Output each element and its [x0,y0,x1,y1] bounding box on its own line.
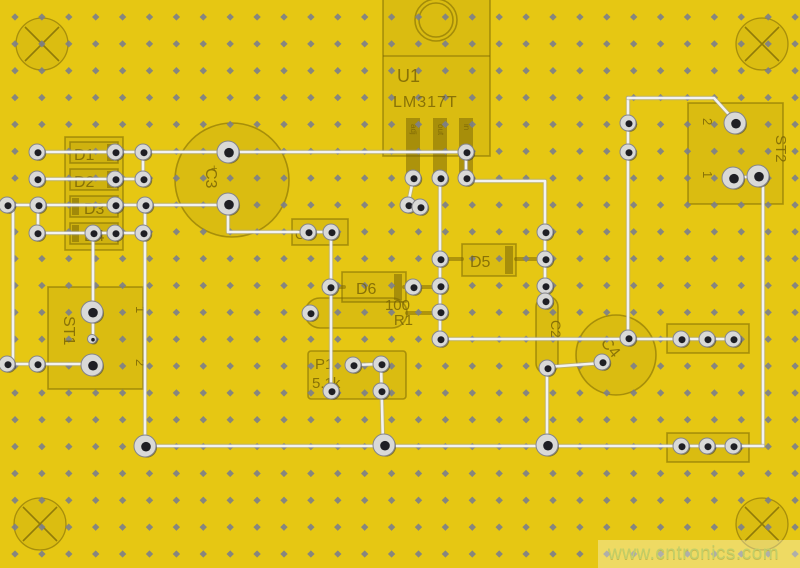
perfboard-hole [119,255,126,262]
perfboard-hole [549,201,556,208]
perfboard-hole [146,497,153,504]
label-st2: ST2 [772,135,789,163]
perfboard-hole [576,67,583,74]
perfboard-hole [522,13,529,20]
perfboard-hole [495,40,502,47]
perfboard-hole [657,524,664,531]
perfboard-hole [173,470,180,477]
perfboard-hole [173,121,180,128]
perfboard-hole [684,362,691,369]
perfboard-hole [469,470,476,477]
perfboard-hole [630,174,637,181]
perfboard-hole [361,524,368,531]
copper-trace [733,176,763,446]
perfboard-hole [415,550,422,557]
perfboard-hole [361,497,368,504]
perfboard-hole [791,174,798,181]
perfboard-hole [361,67,368,74]
perfboard-hole [280,389,287,396]
perfboard-hole [388,550,395,557]
label-d6: D6 [356,281,377,298]
perfboard-hole [549,524,556,531]
perfboard-hole [684,228,691,235]
solder-pad [29,171,46,188]
perfboard-hole [603,121,610,128]
component-c3-outline [175,123,289,237]
perfboard-hole [200,94,207,101]
perfboard-hole [765,362,772,369]
perfboard-hole [711,470,718,477]
perfboard-hole [603,67,610,74]
perfboard-hole [119,470,126,477]
perfboard-hole [549,389,556,396]
perfboard-hole [307,67,314,74]
perfboard-hole [361,228,368,235]
perfboard-hole [11,497,18,504]
perfboard-hole [173,309,180,316]
solder-pad [432,278,449,295]
perfboard-hole [738,309,745,316]
perfboard-hole [173,228,180,235]
perfboard-hole [522,389,529,396]
perfboard-hole [684,282,691,289]
perfboard-hole [173,40,180,47]
perfboard-hole [65,497,72,504]
perfboard-hole [549,470,556,477]
perfboard-hole [119,524,126,531]
perfboard-hole [522,201,529,208]
perfboard-hole [522,94,529,101]
perfboard-hole [657,497,664,504]
perfboard-hole [791,67,798,74]
solder-pad [432,251,449,268]
perfboard-hole [334,121,341,128]
perfboard-hole [522,524,529,531]
perfboard-hole [630,309,637,316]
perfboard-hole [307,550,314,557]
perfboard-hole [307,121,314,128]
perfboard-hole [307,336,314,343]
perfboard-hole [307,13,314,20]
perfboard-hole [280,67,287,74]
perfboard-hole [603,148,610,155]
perfboard-hole [200,550,207,557]
perfboard-hole [496,550,503,557]
perfboard-hole [200,255,207,262]
perfboard-hole [522,550,529,557]
perfboard-hole [791,255,798,262]
perfboard-hole [603,470,610,477]
perfboard-hole [146,524,153,531]
perfboard-hole [738,67,745,74]
solder-pad [81,301,104,324]
perfboard-hole [522,40,529,47]
perfboard-hole [549,67,556,74]
perfboard-hole [522,282,529,289]
perfboard-hole [253,255,260,262]
perfboard-hole [496,121,503,128]
perfboard-hole [630,524,637,531]
perfboard-hole [684,13,691,20]
label-st1: ST1 [60,316,77,345]
perfboard-hole [630,255,637,262]
perfboard-hole [549,121,556,128]
perfboard-hole [38,443,45,450]
perfboard-hole [334,67,341,74]
perfboard-hole [361,255,368,262]
perfboard-hole [415,336,422,343]
solder-pad [432,331,449,348]
perfboard-hole [280,336,287,343]
perfboard-hole [711,255,718,262]
perfboard-hole [280,255,287,262]
perfboard-hole [603,497,610,504]
perfboard-hole [11,67,18,74]
perfboard-hole [711,228,718,235]
perfboard-hole [603,201,610,208]
perfboard-hole [146,40,153,47]
solder-pad [134,435,157,458]
perfboard-hole [92,443,99,450]
perfboard-hole [738,282,745,289]
perfboard-hole [388,228,395,235]
perfboard-hole [791,309,798,316]
perfboard-hole [630,282,637,289]
perfboard-hole [738,416,745,423]
perfboard-hole [65,470,72,477]
perfboard-hole [173,13,180,20]
perfboard-hole [146,121,153,128]
perfboard-hole [791,13,798,20]
perfboard-hole [227,67,234,74]
perfboard-hole [227,282,234,289]
perfboard-hole [522,497,529,504]
perfboard-hole [442,362,449,369]
perfboard-hole [38,309,45,316]
perfboard-hole [576,121,583,128]
perfboard-hole [469,524,476,531]
perfboard-hole [576,94,583,101]
solder-pad [405,279,422,296]
perfboard-hole [227,497,234,504]
perfboard-hole [334,470,341,477]
perfboard-hole [576,282,583,289]
perfboard-hole [119,121,126,128]
solder-pad [537,251,554,268]
label-d5: D5 [470,254,491,271]
perfboard-hole [334,94,341,101]
perfboard-hole [576,40,583,47]
perfboard-hole [280,524,287,531]
perfboard-hole [307,416,314,423]
label-u1-pin-in: in [462,124,471,130]
perfboard-hole [442,201,449,208]
perfboard-hole [200,282,207,289]
perfboard-hole [791,336,798,343]
perfboard-hole [630,470,637,477]
perfboard-hole [495,309,502,316]
perfboard-hole [764,94,771,101]
perfboard-hole [415,416,422,423]
label-r1-ref: R1 [394,312,413,329]
perfboard-hole [603,416,610,423]
perfboard-hole [119,13,126,20]
perfboard-hole [791,362,798,369]
perfboard-hole [522,228,529,235]
perfboard-hole [469,362,476,369]
perfboard-hole [307,470,314,477]
perfboard-hole [657,309,664,316]
perfboard-hole [522,362,529,369]
perfboard-hole [65,255,72,262]
copper-trace [466,181,545,301]
perfboard-hole [92,94,99,101]
perfboard-hole [92,416,99,423]
perfboard-hole [200,13,207,20]
perfboard-hole [11,443,18,450]
perfboard-hole [765,282,772,289]
perfboard-hole [173,524,180,531]
solder-pad [137,197,154,214]
perfboard-hole [253,389,260,396]
perfboard-hole [684,40,691,47]
label-u1-pin-adj: adj [409,124,418,135]
perfboard-hole [92,13,99,20]
perfboard-hole [65,121,72,128]
solder-pad [29,356,46,373]
perfboard-hole [630,13,637,20]
perfboard-hole [253,309,260,316]
perfboard-hole [253,416,260,423]
perfboard-hole [469,550,476,557]
perfboard-hole [738,362,745,369]
perfboard-hole [496,362,503,369]
perfboard-hole [92,121,99,128]
perfboard-hole [576,255,583,262]
perfboard-hole [280,40,287,47]
perfboard-hole [11,550,18,557]
perfboard-hole [765,416,772,423]
perfboard-hole [173,336,180,343]
perfboard-hole [415,470,422,477]
perfboard-hole [791,497,798,504]
label-st2-pin2: 2 [700,118,715,125]
perfboard-hole [764,470,771,477]
perfboard-hole [334,524,341,531]
perfboard-hole [173,362,180,369]
solder-pad [724,112,747,135]
perfboard-hole [603,255,610,262]
perfboard-hole [11,416,18,423]
perfboard-hole [38,282,45,289]
perfboard-hole [657,362,664,369]
watermark-link[interactable]: www.cntronics.com [598,543,779,565]
perfboard-hole [765,443,772,450]
perfboard-hole [496,282,503,289]
perfboard-hole [226,524,233,531]
perfboard-hole [38,416,45,423]
perfboard-hole [711,282,718,289]
perfboard-hole [603,13,610,20]
perfboard-hole [119,94,126,101]
perfboard-hole [576,470,583,477]
perfboard-hole [496,389,503,396]
pcb-layers: U1 LM317T adj out in D1 D2 D3 D4 D5 D6 C… [0,0,800,568]
perfboard-hole [738,13,745,20]
perfboard-hole [92,524,99,531]
perfboard-hole [576,148,583,155]
perfboard-hole [442,470,449,477]
perfboard-hole [496,497,503,504]
perfboard-hole [522,148,529,155]
perfboard-hole [361,121,368,128]
perfboard-hole [657,40,664,47]
perfboard-hole [146,94,153,101]
perfboard-hole [442,416,449,423]
perfboard-hole [173,497,180,504]
perfboard-hole [791,389,798,396]
perfboard-hole [119,497,126,504]
solder-pad [322,279,339,296]
perfboard-hole [65,94,72,101]
perfboard-hole [280,362,287,369]
perfboard-hole [603,282,610,289]
perfboard-hole [280,470,287,477]
perfboard-hole [388,336,395,343]
perfboard-hole [576,524,583,531]
perfboard-hole [657,389,664,396]
copper-trace [466,181,545,301]
perfboard-hole [119,67,126,74]
perfboard-hole [711,67,718,74]
perfboard-hole [576,228,583,235]
perfboard-hole [253,67,260,74]
perfboard-hole [657,255,664,262]
perfboard-hole [496,67,503,74]
perfboard-hole [684,470,691,477]
perfboard-hole [576,416,583,423]
perfboard-hole [603,94,610,101]
perfboard-hole [200,497,207,504]
perfboard-hole [442,389,449,396]
perfboard-hole [361,336,368,343]
solder-pad [722,167,745,190]
perfboard-hole [711,309,718,316]
perfboard-hole [11,174,18,181]
perfboard-hole [38,255,45,262]
perfboard-hole [791,40,798,47]
perfboard-hole [469,309,476,316]
perfboard-hole [226,309,233,316]
perfboard-hole [711,416,718,423]
perfboard-hole [334,336,341,343]
perfboard-hole [280,550,287,557]
perfboard-hole [442,550,449,557]
perfboard-hole [415,255,422,262]
perfboard-hole [576,13,583,20]
perfboard-hole [38,94,45,101]
perfboard-hole [522,255,529,262]
perfboard-hole [227,255,234,262]
solder-pad [217,193,240,216]
perfboard-hole [38,389,45,396]
perfboard-hole [92,67,99,74]
perfboard-hole [227,13,234,20]
perfboard-hole [495,201,502,208]
perfboard-hole [630,40,637,47]
perfboard-hole [334,497,341,504]
perfboard-hole [549,40,556,47]
perfboard-hole [334,550,341,557]
perfboard-hole [684,497,691,504]
perfboard-hole [603,174,610,181]
solder-pad [135,171,152,188]
perfboard-hole [442,524,449,531]
perfboard-hole [576,550,583,557]
perfboard-hole [11,13,18,20]
copper-trace [733,176,763,446]
perfboard-hole [738,389,745,396]
perfboard-hole [173,255,180,262]
perfboard-hole [711,524,718,531]
perfboard-hole [711,497,718,504]
perfboard-hole [791,94,798,101]
solder-pad [30,197,47,214]
perfboard-hole [657,67,664,74]
perfboard-hole [576,497,583,504]
perfboard-hole [388,470,395,477]
perfboard-hole [576,389,583,396]
perfboard-hole [361,13,368,20]
pcb-board-image: U1 LM317T adj out in D1 D2 D3 D4 D5 D6 C… [0,0,800,568]
perfboard-hole [576,201,583,208]
perfboard-hole [227,550,234,557]
solder-pad [537,278,554,295]
perfboard-hole [765,336,772,343]
perfboard-hole [765,389,772,396]
perfboard-hole [307,201,314,208]
perfboard-hole [549,497,556,504]
perfboard-hole [791,524,798,531]
perfboard-hole [684,67,691,74]
perfboard-hole [38,336,45,343]
label-u1-pin-out: out [436,124,445,136]
perfboard-hole [469,416,476,423]
perfboard-hole [791,443,798,450]
perfboard-hole [791,121,798,128]
perfboard-hole [226,470,233,477]
perfboard-hole [388,524,395,531]
perfboard-hole [522,416,529,423]
perfboard-hole [119,416,126,423]
solder-pad [537,293,554,310]
perfboard-hole [280,416,287,423]
perfboard-hole [496,416,503,423]
perfboard-hole [200,389,207,396]
perfboard-hole [549,148,556,155]
perfboard-hole [119,550,126,557]
perfboard-hole [495,524,502,531]
label-u1-ref: U1 [397,66,420,86]
perfboard-hole [334,13,341,20]
perfboard-hole [173,94,180,101]
perfboard-hole [415,524,422,531]
perfboard-hole [415,362,422,369]
perfboard-hole [522,309,529,316]
perfboard-hole [738,497,745,504]
perfboard-hole [334,416,341,423]
perfboard-hole [791,148,798,155]
